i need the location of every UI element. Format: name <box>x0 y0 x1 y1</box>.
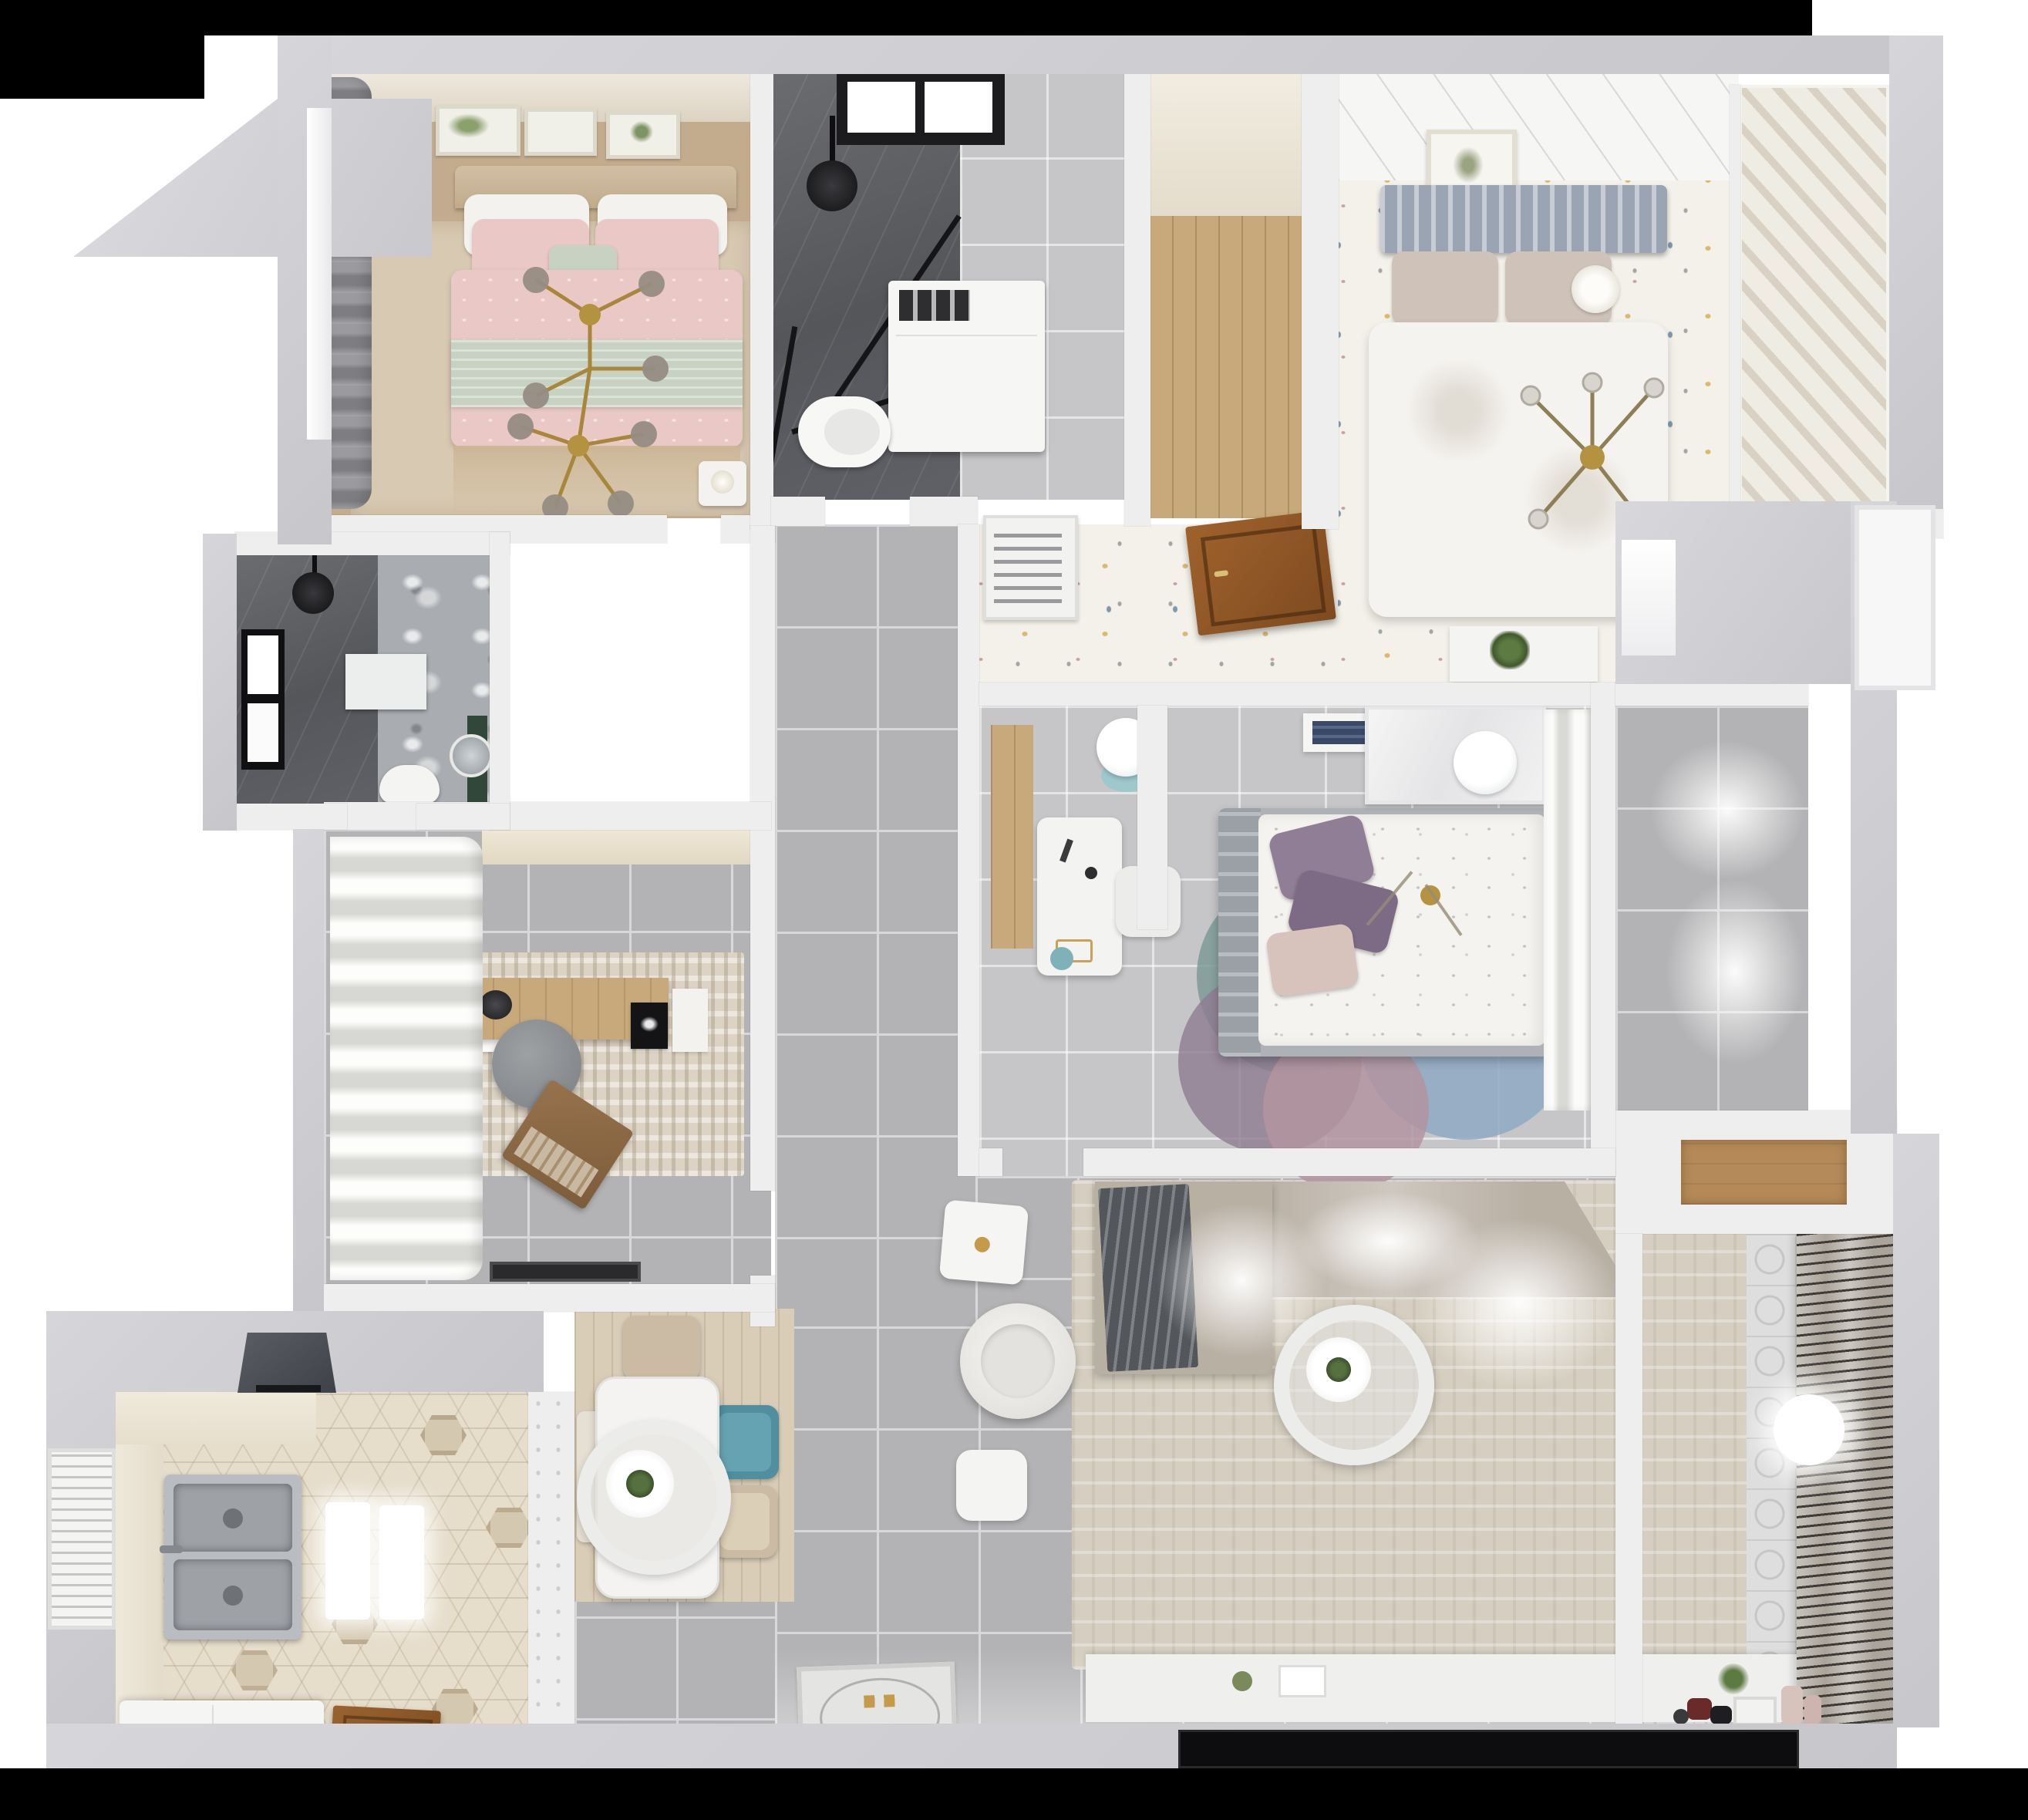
ac-louver-grille <box>983 515 1078 620</box>
wall-bath2-right <box>490 532 510 830</box>
doormat-gold-handles <box>864 1694 895 1707</box>
skylight-pane-1 <box>847 82 915 133</box>
console-deco-box <box>1278 1665 1326 1697</box>
roof-wedge <box>73 99 432 257</box>
letterbox-bottom-strip <box>0 1768 2028 1820</box>
wall-bedroom-center-partial <box>1137 706 1167 929</box>
nightstand-lamp-right <box>1454 731 1517 794</box>
bedroom-center-wood-strip <box>991 725 1033 949</box>
console-green-ball <box>1232 1671 1252 1691</box>
wall-bedroom-center-top <box>979 682 1596 706</box>
wall-corridor-right <box>958 524 979 1176</box>
room-bathroom-left <box>235 555 490 804</box>
outer-wall-right-lower <box>1893 1134 1939 1727</box>
stool-gold-deco <box>974 1236 991 1253</box>
outer-wall-left-bath <box>203 534 237 831</box>
tv-panel <box>1178 1730 1799 1768</box>
nook-wood-floor <box>1149 216 1303 518</box>
sofa-light-pool <box>1295 1191 1481 1292</box>
kitchen-light-panel-2 <box>379 1505 424 1619</box>
wall-bedroom-center-right <box>1591 682 1615 1176</box>
wall-master-bath-divider <box>750 35 773 529</box>
closet-chevron-wardrobe <box>1739 85 1889 511</box>
shower-head-arm <box>830 116 835 167</box>
gold-chandelier <box>463 253 717 546</box>
armchair-side-table <box>956 1450 1027 1521</box>
closet-left-frame <box>1730 85 1740 511</box>
balcony-ball-lamp <box>1774 1394 1844 1465</box>
balcony-louver-blinds <box>1797 1234 1893 1768</box>
toy-small <box>1673 1709 1689 1724</box>
wall-bath2-top <box>235 532 510 555</box>
skylight-pane-2 <box>925 82 992 133</box>
bath2-window <box>241 629 285 770</box>
bath2-shower-head <box>292 572 334 614</box>
room-wardrobe-nook <box>1149 71 1303 518</box>
bed3-headboard <box>1218 808 1261 1057</box>
kitchen-light-panel-1 <box>325 1502 370 1619</box>
sink-basin-1 <box>173 1484 292 1552</box>
dining-pendant-plant <box>626 1470 654 1498</box>
picture-frame-2 <box>524 108 597 156</box>
outer-wall-top <box>278 35 1943 74</box>
letterbox-top-left-block <box>0 0 204 99</box>
bed2-round-pillow <box>1572 265 1619 313</box>
window-pane-b <box>248 703 278 762</box>
pink-vase-2 <box>1804 1695 1821 1724</box>
wall-balcony-left <box>1615 1234 1642 1727</box>
shelf-plant <box>1490 631 1530 669</box>
armchair-cushion <box>981 1324 1055 1398</box>
washer-control-panel <box>899 290 970 321</box>
sink-basin-2 <box>173 1559 292 1630</box>
range-hood <box>237 1333 336 1393</box>
frame-glyph <box>640 1016 659 1032</box>
wall-bath-bottom-a <box>771 497 825 526</box>
botanical-art-2 <box>630 121 653 143</box>
white-door-right <box>1855 505 1935 690</box>
wall-bath-bottom-b <box>910 497 978 526</box>
drain-1 <box>223 1508 243 1528</box>
round-mirror <box>450 734 493 777</box>
botanical-art <box>447 113 490 138</box>
kitchen-window-blinds <box>48 1448 116 1630</box>
desk-black-frame <box>631 1003 668 1049</box>
bedroom-desk <box>1037 817 1122 976</box>
outer-wall-right-upper <box>1889 35 1943 509</box>
drain-2 <box>223 1586 243 1606</box>
wall-bath2-bottom-b <box>416 804 510 830</box>
sketch-art <box>1453 147 1484 184</box>
double-sink <box>164 1475 302 1640</box>
wall-bath-nook-divider <box>1124 35 1150 526</box>
desk-dot <box>1085 867 1097 879</box>
nook-back-wall <box>1149 71 1303 216</box>
desk-side-papers <box>672 989 708 1052</box>
toy-kart-red <box>1687 1698 1712 1720</box>
desk-pens <box>1059 839 1073 863</box>
window-pane-a <box>248 635 278 694</box>
hall-shelf-partition <box>1450 626 1598 682</box>
toilet-seat <box>824 409 880 455</box>
floorplan-render <box>0 0 2028 1820</box>
bed3-pillow-blush <box>1265 923 1359 998</box>
bed2-headboard-slats <box>1380 185 1667 253</box>
shower-head <box>807 160 857 211</box>
study-curtains <box>330 837 483 1280</box>
desk-camera-item <box>480 990 512 1020</box>
corridor-glow-1 <box>1650 740 1804 879</box>
wall-study-top <box>324 802 771 830</box>
bedroom-right-ceiling-planks <box>1338 71 1739 180</box>
room-bathroom-top <box>771 71 1126 500</box>
washing-machine <box>888 281 1045 452</box>
hood-vent-slot <box>256 1385 321 1392</box>
niche-wood-shelf <box>1681 1140 1847 1205</box>
console-small-plant <box>1718 1663 1749 1694</box>
kitchen-counter-top <box>116 1392 316 1444</box>
living-pendant-plant <box>1326 1357 1351 1382</box>
white-cube-stool <box>939 1199 1029 1285</box>
wall-kitchen-right <box>528 1392 574 1768</box>
teal-mug <box>1050 947 1073 970</box>
faucet <box>160 1545 183 1553</box>
doorway-glow-right <box>1622 540 1676 656</box>
bath2-toilet <box>379 765 440 804</box>
master-window-glow <box>307 108 332 440</box>
wall-corridor-left-a <box>750 526 775 1191</box>
dining-chair-top <box>623 1316 700 1380</box>
louver-lines <box>994 526 1062 603</box>
mini-bench <box>1733 1697 1777 1726</box>
bath2-niche <box>345 654 426 709</box>
bedroom-center-curtains <box>1544 709 1592 1111</box>
picture-frame-3 <box>606 111 680 159</box>
letterbox-top-strip <box>204 0 1812 35</box>
bed2-pillow-left <box>1392 251 1498 325</box>
toy-kart-black <box>1710 1706 1732 1724</box>
wall-bedroom-center-bottom-b <box>1083 1148 1615 1176</box>
toilet-top <box>798 396 891 467</box>
skylight-frame <box>837 71 1005 145</box>
wall-corridor-right-top <box>1615 682 1808 706</box>
picture-frame-1 <box>436 105 520 156</box>
pink-vase-1 <box>1781 1686 1803 1724</box>
washer-seam <box>896 335 1037 336</box>
outer-wall-left-study <box>293 829 324 1313</box>
wall-nook-bedroom-divider <box>1302 35 1339 529</box>
study-doormat <box>490 1262 641 1282</box>
corridor-glow-2 <box>1666 879 1804 1064</box>
wall-bedroom-center-bottom-a <box>979 1148 1002 1176</box>
teal-chair-cushion <box>719 1413 771 1471</box>
wall-study-bottom <box>324 1284 775 1312</box>
study-top-cabinet <box>482 829 771 865</box>
